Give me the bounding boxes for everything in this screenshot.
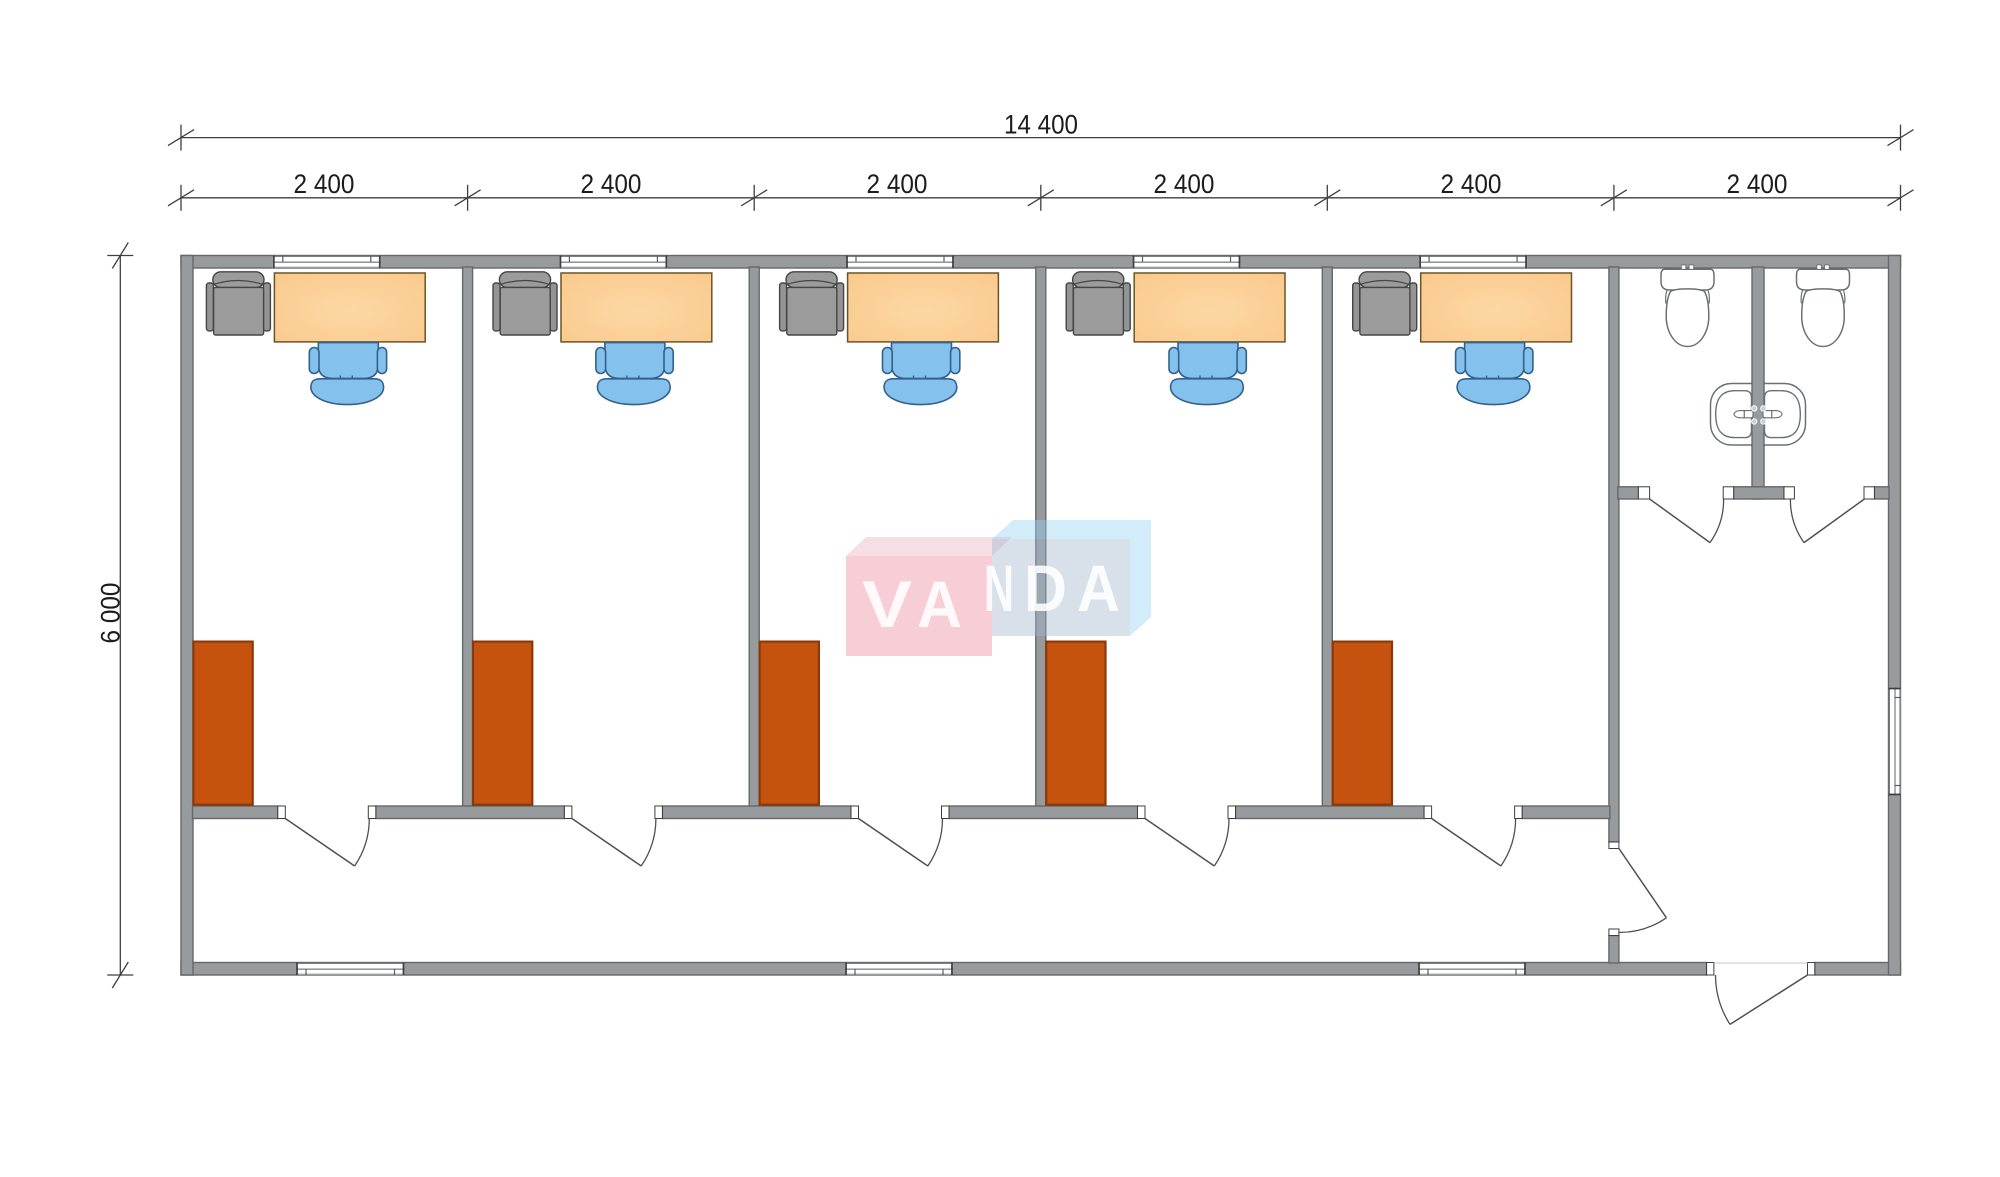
svg-text:2 400: 2 400 (1727, 169, 1788, 199)
svg-text:V: V (862, 567, 912, 641)
svg-text:A: A (1077, 551, 1120, 625)
svg-text:N: N (984, 551, 1014, 625)
svg-text:2 400: 2 400 (867, 169, 928, 199)
svg-text:2 400: 2 400 (1154, 169, 1215, 199)
svg-text:A: A (917, 567, 962, 641)
svg-text:2 400: 2 400 (581, 169, 642, 199)
svg-text:2 400: 2 400 (1441, 169, 1502, 199)
svg-text:6 000: 6 000 (96, 583, 126, 644)
svg-text:2 400: 2 400 (294, 169, 355, 199)
svg-text:D: D (1024, 551, 1067, 625)
svg-text:14 400: 14 400 (1004, 109, 1078, 139)
